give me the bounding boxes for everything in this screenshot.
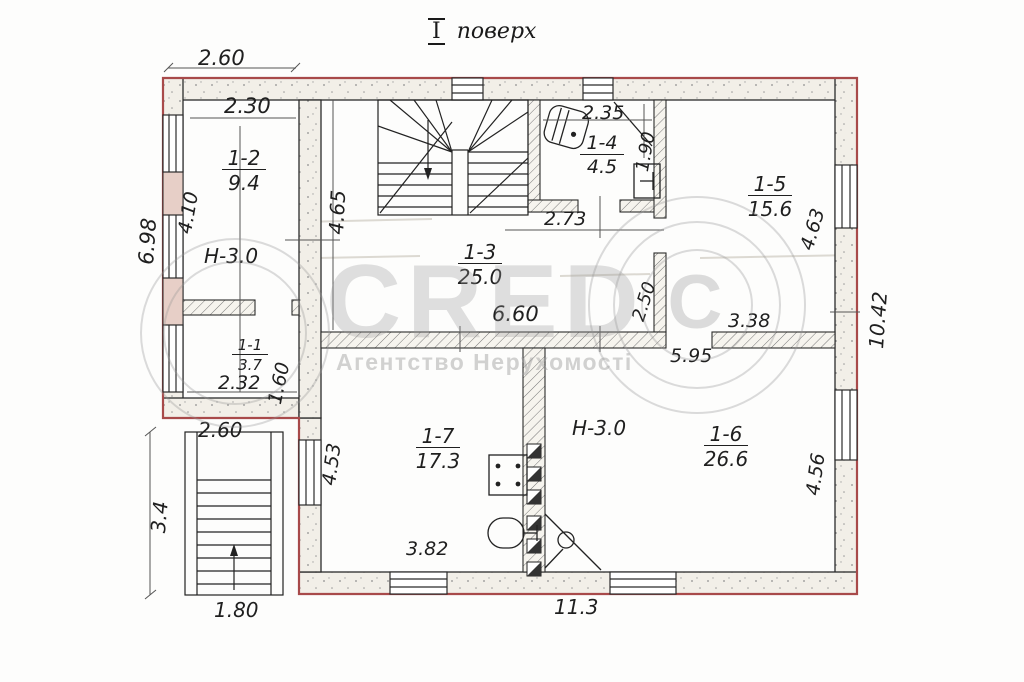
room-area: 3.7 — [226, 355, 274, 373]
room-number: 1-7 — [416, 426, 461, 448]
room-number: 1-5 — [748, 174, 793, 196]
internal-staircase — [378, 100, 528, 215]
room-area: 17.3 — [406, 448, 470, 471]
room-number: 1-3 — [458, 242, 503, 264]
floor-title: Іповерх — [428, 18, 536, 45]
dimension-label: 3.38 — [728, 312, 770, 331]
external-staircase — [185, 432, 283, 595]
room-area: 9.4 — [212, 170, 276, 193]
dimension-label: 6.60 — [492, 304, 539, 325]
dimension-label: 10.42 — [866, 291, 890, 350]
dimension-label: 2.35 — [582, 104, 624, 123]
room-label-1-5: 1-5 15.6 — [738, 172, 802, 219]
dimension-label: 3.4 — [148, 500, 171, 533]
dimension-label: 5.95 — [670, 347, 712, 366]
floor-title-numeral: І — [428, 18, 445, 45]
floor-title-word: поверх — [457, 19, 537, 44]
dimension-label: 1.80 — [214, 600, 259, 620]
room-label-1-3: 1-3 25.0 — [444, 240, 516, 287]
stove-icon — [489, 455, 527, 495]
dimension-label: 3.82 — [406, 540, 448, 559]
dimension-label: 11.3 — [554, 597, 599, 617]
room-area: 25.0 — [444, 264, 516, 287]
height-label: Н-3.0 — [572, 418, 626, 438]
room-area: 4.5 — [574, 155, 630, 177]
room-number: 1-2 — [222, 148, 267, 170]
dimension-label: 2.60 — [198, 48, 245, 69]
dimension-label: 4.65 — [326, 190, 348, 236]
dimension-label: 2.60 — [198, 420, 243, 440]
room-label-1-4: 1-4 4.5 — [574, 132, 630, 177]
interior-walls — [183, 100, 835, 572]
room-area: 15.6 — [738, 196, 802, 219]
room-label-1-1: 1-1 3.7 — [226, 336, 274, 373]
room-number: 1-4 — [580, 134, 623, 155]
dimension-label: 2.32 — [218, 374, 260, 393]
room-number: 1-6 — [704, 424, 749, 446]
height-label: Н-3.0 — [204, 246, 258, 266]
dimension-label: 2.73 — [544, 210, 586, 229]
room-area: 26.6 — [694, 446, 758, 469]
dimension-label: 6.98 — [136, 217, 160, 265]
fireplace-icon — [545, 514, 601, 570]
floor-plan-page: Іповерх 1-2 9.4 1-1 3.7 1-3 25.0 1-4 4.5… — [0, 0, 1024, 682]
room-label-1-7: 1-7 17.3 — [406, 424, 470, 471]
room-label-1-6: 1-6 26.6 — [694, 422, 758, 469]
room-number: 1-1 — [232, 338, 269, 355]
dimension-label: 2.30 — [224, 96, 271, 117]
room-label-1-2: 1-2 9.4 — [212, 146, 276, 193]
